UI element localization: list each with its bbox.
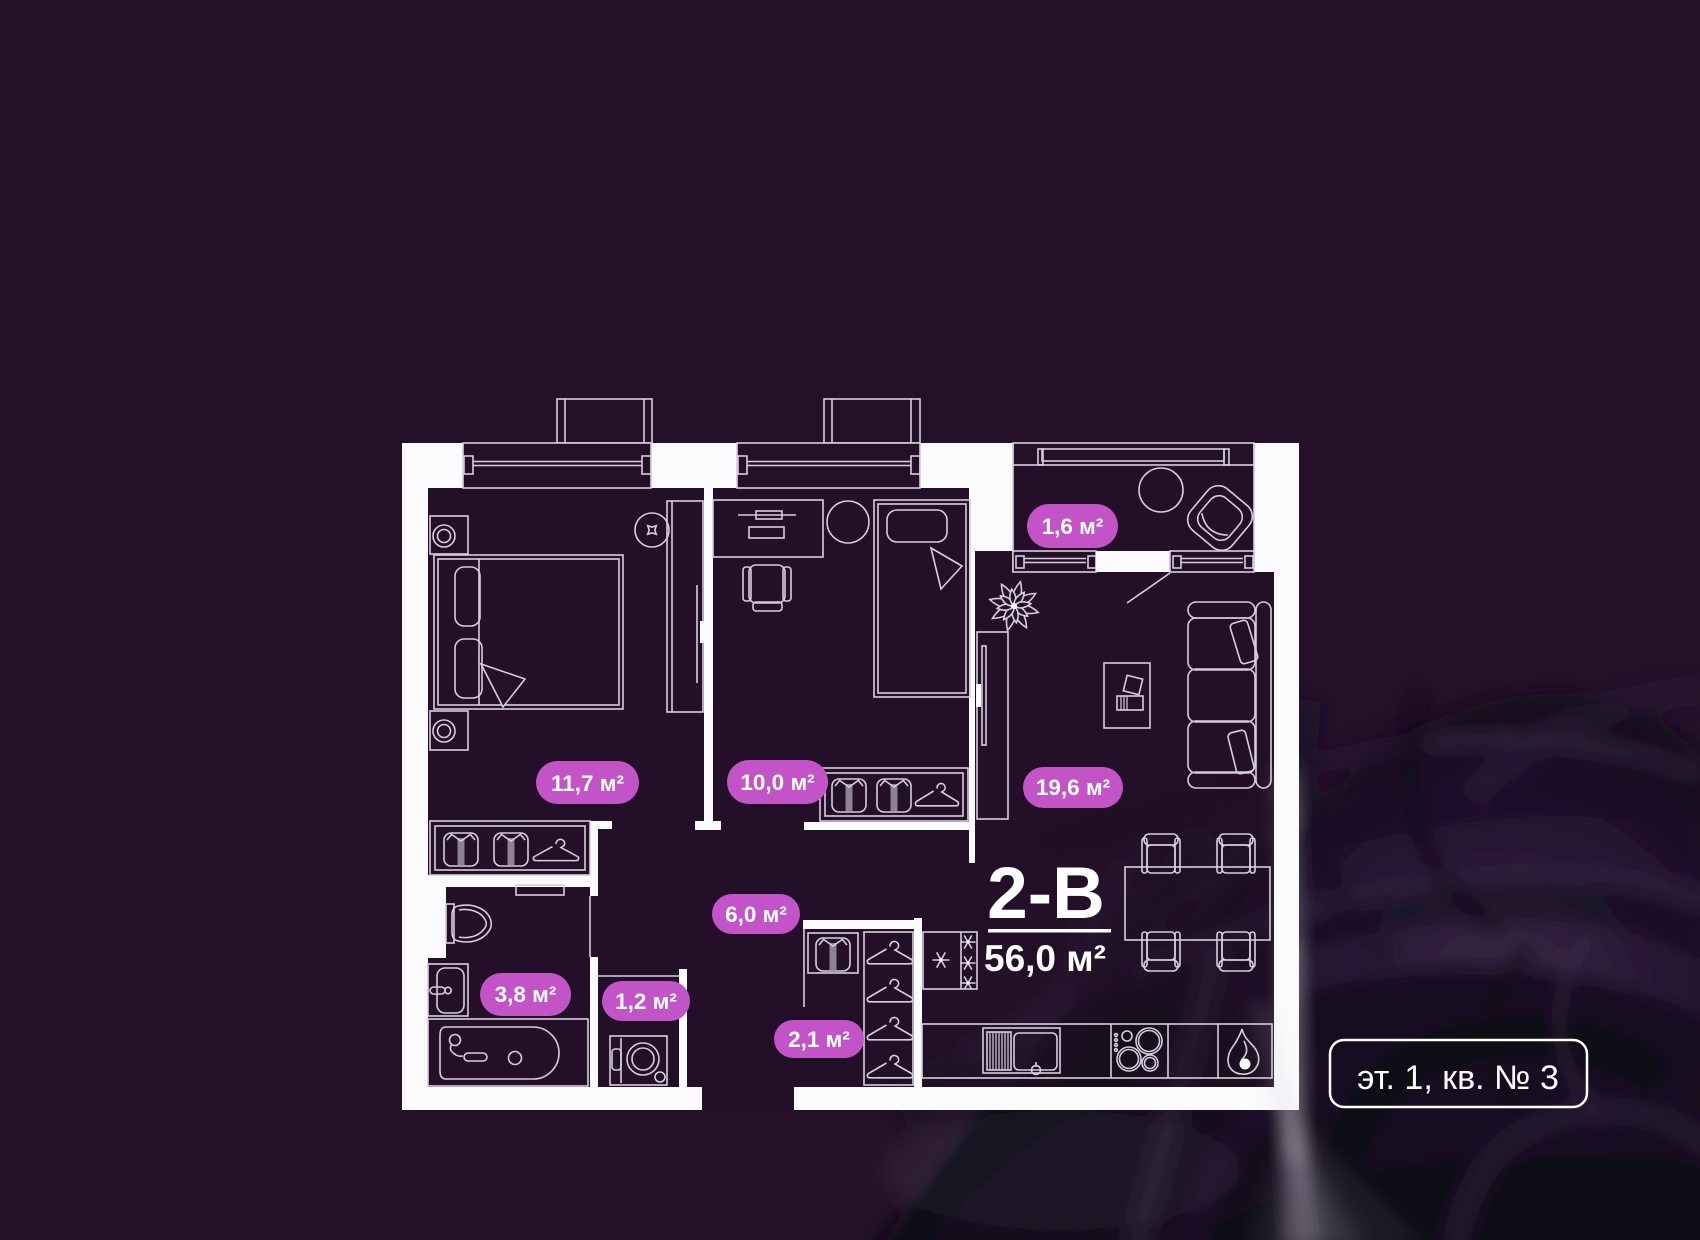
svg-text:эт. 1, кв. № 3: эт. 1, кв. № 3 [1357, 1059, 1559, 1097]
svg-text:11,7 м²: 11,7 м² [551, 771, 624, 796]
svg-text:1,6 м²: 1,6 м² [1042, 514, 1104, 539]
svg-text:6,0 м²: 6,0 м² [725, 902, 787, 927]
svg-text:2,1 м²: 2,1 м² [788, 1027, 850, 1052]
svg-text:1,2 м²: 1,2 м² [615, 989, 677, 1014]
svg-text:56,0 м²: 56,0 м² [984, 938, 1106, 979]
svg-text:3,8 м²: 3,8 м² [495, 982, 557, 1007]
svg-text:10,0 м²: 10,0 м² [740, 770, 815, 795]
svg-text:19,6 м²: 19,6 м² [1036, 775, 1111, 800]
svg-text:2-В: 2-В [987, 853, 1105, 934]
